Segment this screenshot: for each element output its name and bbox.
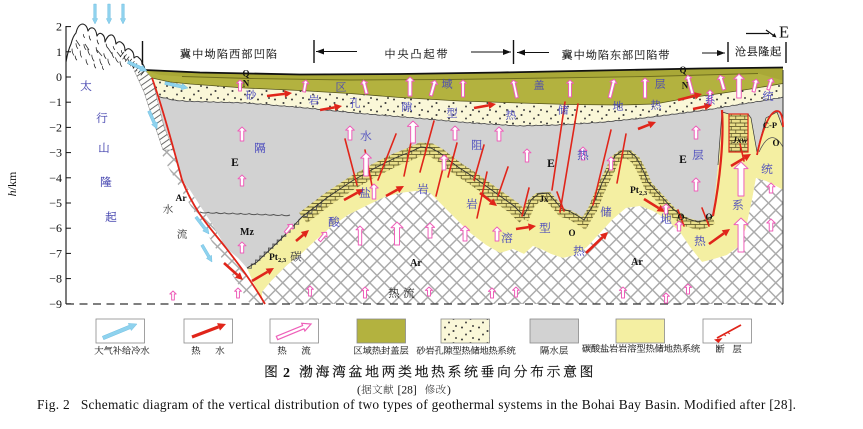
svg-text:Ar: Ar: [410, 258, 422, 269]
svg-text:−7: −7: [49, 246, 62, 260]
svg-text:Fig. 2 Schematic diagram of: Fig. 2 Schematic diagram of the vertical…: [37, 397, 796, 412]
svg-text:E: E: [231, 157, 239, 169]
svg-text:−2: −2: [49, 120, 62, 134]
svg-text:−5: −5: [49, 196, 62, 210]
svg-text:−3: −3: [49, 146, 62, 160]
svg-text:N: N: [682, 81, 689, 91]
svg-text:1: 1: [56, 45, 62, 59]
svg-text:E: E: [679, 154, 687, 166]
svg-text:(: (: [357, 385, 361, 397]
svg-text:Mz: Mz: [240, 227, 254, 238]
svg-text:Ar: Ar: [175, 194, 187, 204]
svg-text:Jxw: Jxw: [731, 135, 748, 145]
svg-text:Q: Q: [679, 65, 686, 75]
svg-text:Ar: Ar: [631, 257, 643, 268]
svg-text:O: O: [568, 228, 575, 238]
svg-text:O: O: [677, 212, 684, 222]
svg-text:−6: −6: [49, 221, 62, 235]
svg-text:−9: −9: [49, 297, 62, 311]
svg-text:2: 2: [56, 20, 62, 34]
svg-text:Q: Q: [242, 69, 249, 79]
svg-text:2: 2: [283, 366, 290, 381]
svg-text:E: E: [779, 23, 789, 42]
svg-text:[28]: [28]: [398, 385, 417, 397]
svg-text:−4: −4: [49, 171, 62, 185]
svg-text:C-P: C-P: [763, 120, 777, 130]
svg-text:N: N: [243, 79, 250, 89]
svg-text:E: E: [547, 158, 555, 170]
svg-text:O: O: [705, 212, 712, 222]
svg-text:−1: −1: [49, 95, 62, 109]
svg-text:h/km: h/km: [5, 171, 19, 196]
svg-text:Jx: Jx: [540, 194, 550, 204]
svg-text:−8: −8: [49, 272, 62, 286]
svg-text:0: 0: [56, 70, 62, 84]
svg-text:O: O: [772, 138, 779, 148]
svg-text:): ): [447, 385, 451, 397]
